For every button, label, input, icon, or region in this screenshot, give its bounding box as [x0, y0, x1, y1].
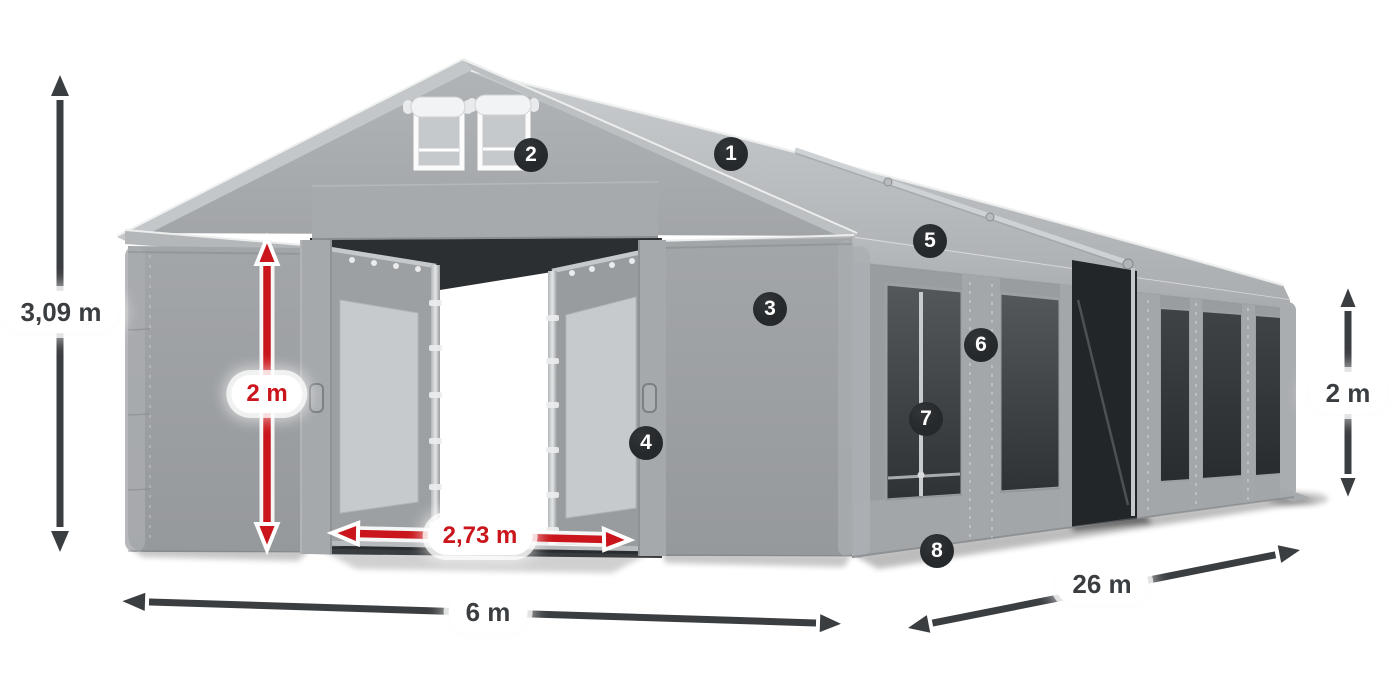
dimension-label-door-width: 2,73 m	[428, 517, 533, 555]
marker-7[interactable]: 7	[909, 402, 943, 436]
side-window	[1160, 308, 1190, 482]
marker-6[interactable]: 6	[964, 328, 998, 362]
marker-1[interactable]: 1	[714, 137, 748, 171]
marker-3[interactable]: 3	[753, 292, 787, 326]
tent-illustration	[0, 0, 1400, 700]
pass-through-opening	[440, 272, 552, 534]
gable-vent-left	[403, 97, 473, 168]
open-side-section	[1072, 260, 1137, 527]
product-dimension-diagram: 3,09 m 2 m 2,73 m 6 m 26 m 2 m 1 2 3 4 5…	[0, 0, 1400, 700]
side-window	[886, 284, 962, 500]
dimension-label-front-width: 6 m	[449, 591, 528, 633]
front-wall-right	[658, 238, 854, 556]
door-handle-right	[643, 384, 656, 412]
dimension-label-total-height: 3,09 m	[4, 291, 119, 333]
marker-5[interactable]: 5	[913, 224, 947, 258]
dimension-label-side-length: 26 m	[1055, 563, 1148, 605]
dimension-label-side-height: 2 m	[1309, 372, 1388, 414]
dimension-label-door-height: 2 m	[231, 375, 302, 413]
door-handle-left	[310, 384, 323, 412]
side-window	[1000, 293, 1060, 492]
inner-door-left	[328, 250, 436, 547]
side-window	[1202, 311, 1242, 479]
marker-2[interactable]: 2	[514, 138, 548, 172]
door-header	[312, 180, 658, 240]
marker-8[interactable]: 8	[920, 534, 954, 568]
marker-4[interactable]: 4	[629, 426, 663, 460]
entrance-interior	[310, 238, 662, 558]
